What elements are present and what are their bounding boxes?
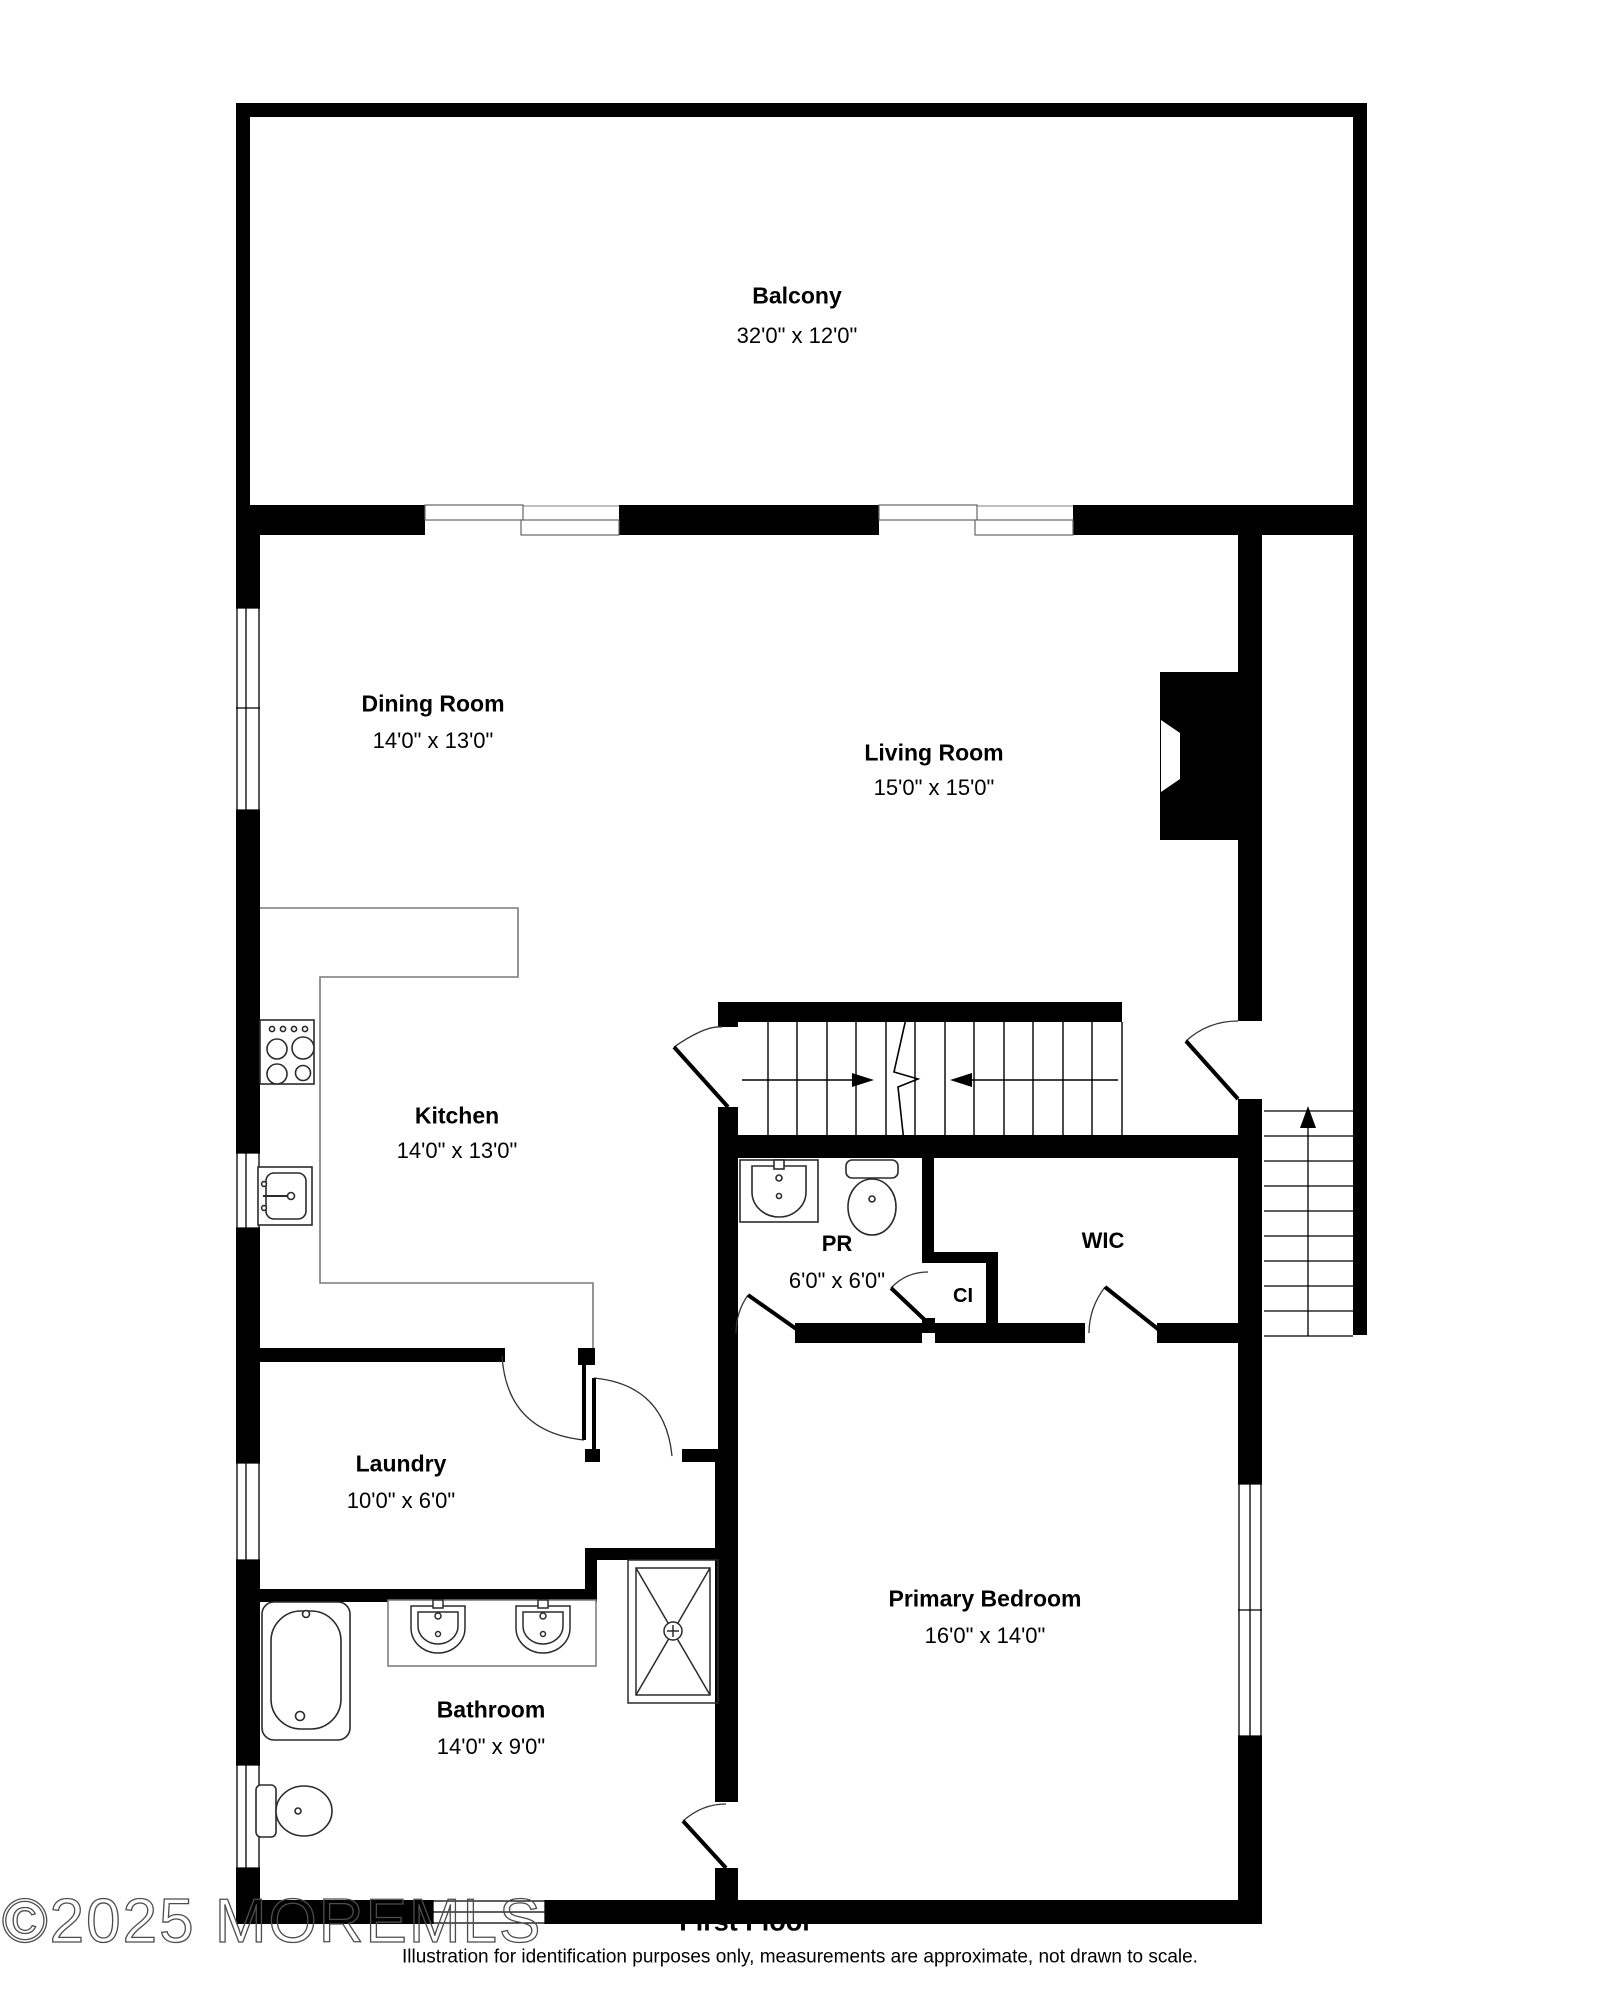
- room-dims-pr: 6'0" x 6'0": [789, 1270, 885, 1292]
- floor-title: First Floor: [679, 1909, 813, 1936]
- door-arc-icon: [594, 1378, 672, 1456]
- room-dims-living: 15'0" x 15'0": [874, 777, 995, 799]
- room-label-living: Living Room: [864, 742, 1003, 765]
- disclaimer-text: Illustration for identification purposes…: [402, 1948, 1198, 1967]
- floor-plan: Balcony 32'0" x 12'0" Dining Room 14'0" …: [0, 0, 1600, 1999]
- room-label-ci: CI: [953, 1286, 973, 1306]
- room-label-balcony: Balcony: [752, 285, 841, 308]
- exterior-stairs-icon: [1264, 1106, 1353, 1336]
- stove-icon: [260, 1020, 314, 1084]
- room-dims-bathroom: 14'0" x 9'0": [437, 1736, 545, 1758]
- room-dims-balcony: 32'0" x 12'0": [737, 325, 858, 347]
- bathtub-icon: [262, 1602, 350, 1740]
- room-dims-laundry: 10'0" x 6'0": [347, 1490, 455, 1512]
- room-label-primary: Primary Bedroom: [888, 1588, 1081, 1611]
- room-dims-dining: 14'0" x 13'0": [373, 730, 494, 752]
- room-label-bathroom: Bathroom: [437, 1699, 546, 1722]
- up-arrow-icon: [852, 1073, 874, 1087]
- room-dims-primary: 16'0" x 14'0": [925, 1625, 1046, 1647]
- door-arc-icon: [736, 1295, 802, 1333]
- room-label-wic: WIC: [1082, 1230, 1125, 1252]
- door-arc-icon: [1186, 1021, 1238, 1099]
- vanity-sinks-icon: [388, 1600, 596, 1666]
- room-label-laundry: Laundry: [356, 1453, 447, 1476]
- room-dims-kitchen: 14'0" x 13'0": [397, 1140, 518, 1162]
- room-label-pr: PR: [822, 1233, 853, 1255]
- interior-stairs-icon: [742, 1014, 1122, 1142]
- door-arc-icon: [502, 1356, 584, 1440]
- pr-toilet-icon: [846, 1160, 898, 1235]
- bath-toilet-icon: [256, 1785, 332, 1837]
- up-arrow-icon: [950, 1073, 972, 1087]
- pr-sink-icon: [740, 1160, 818, 1222]
- fireplace-icon: [1159, 672, 1238, 840]
- room-label-kitchen: Kitchen: [415, 1105, 499, 1128]
- door-arc-icon: [891, 1272, 928, 1323]
- window-icon: [236, 608, 1262, 1924]
- room-label-dining: Dining Room: [361, 693, 504, 716]
- door-arc-icon: [674, 1027, 728, 1107]
- up-arrow-icon: [1300, 1106, 1316, 1128]
- door-arc-icon: [1089, 1287, 1163, 1333]
- door-arc-icon: [683, 1804, 726, 1868]
- shower-icon: [628, 1560, 718, 1703]
- kitchen-sink-icon: [258, 1167, 312, 1225]
